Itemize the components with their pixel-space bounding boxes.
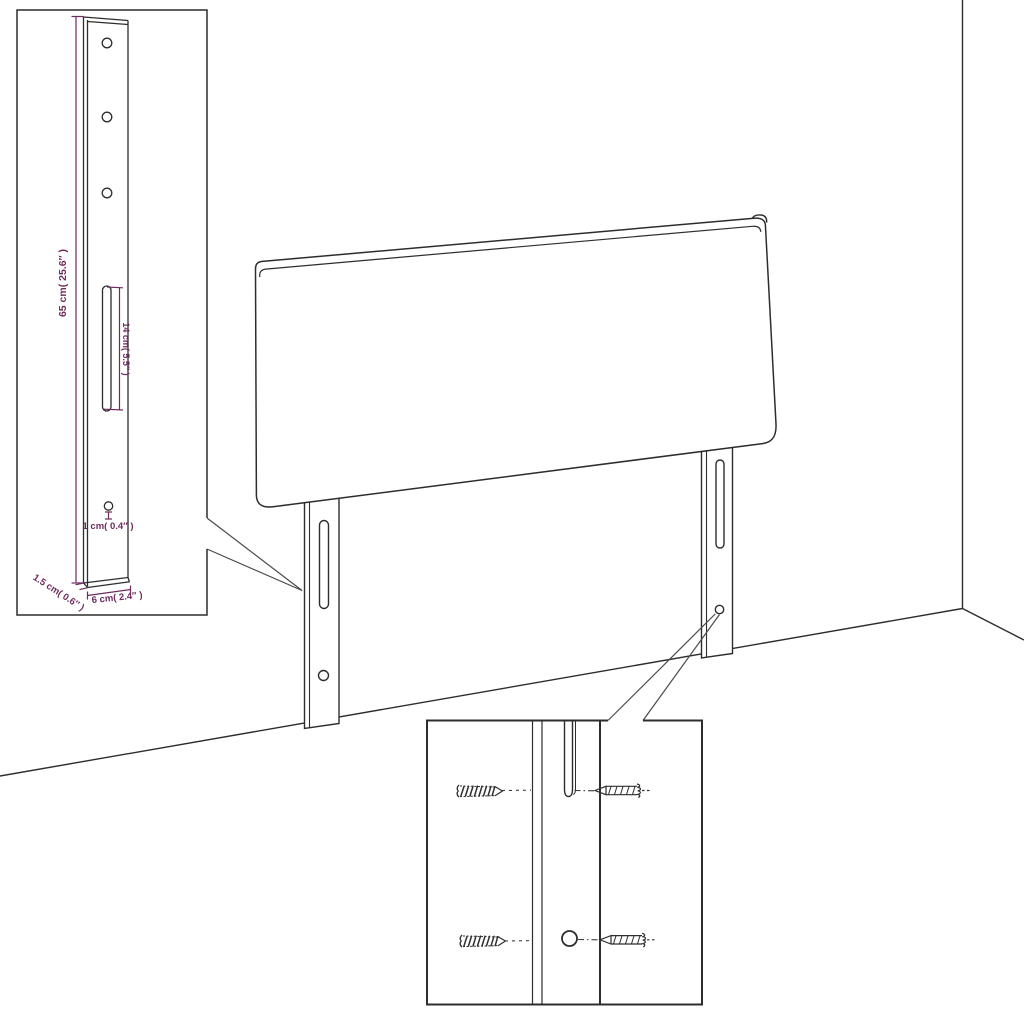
callout-lines bbox=[207, 518, 720, 721]
right-leg-hole bbox=[715, 605, 723, 613]
dim-slot-tick-bottom bbox=[104, 409, 123, 410]
left-leg-slot bbox=[320, 521, 329, 609]
headboard-panel bbox=[255, 218, 776, 507]
dim-height-label: 65 cm( 25.6″ ) bbox=[57, 249, 69, 317]
screw-detail-inset bbox=[427, 721, 702, 1005]
dim-slot-label: 14 cm( 5.5″ ) bbox=[121, 322, 131, 375]
floor-line-right bbox=[963, 609, 1024, 641]
headboard bbox=[255, 215, 776, 507]
bracket-detail-inset: 65 cm( 25.6″ ) 14 cm( 5.5″ ) 1 cm( 0.4″ … bbox=[17, 10, 207, 615]
left-leg-hole bbox=[319, 671, 329, 681]
right-leg-slot bbox=[716, 460, 724, 548]
assembly-diagram: 65 cm( 25.6″ ) 14 cm( 5.5″ ) 1 cm( 0.4″ … bbox=[0, 0, 1024, 1024]
screw-callout-line-right bbox=[643, 615, 720, 721]
bracket-callout-line-lower bbox=[207, 549, 302, 591]
product-diagram-canvas: 65 cm( 25.6″ ) 14 cm( 5.5″ ) 1 cm( 0.4″ … bbox=[0, 0, 1024, 1024]
left-leg bbox=[305, 466, 340, 729]
dim-slot-tick-top bbox=[107, 287, 123, 288]
bracket-callout-line-upper bbox=[207, 518, 302, 591]
dim-hole-label: 1 cm( 0.4″ ) bbox=[82, 521, 133, 532]
